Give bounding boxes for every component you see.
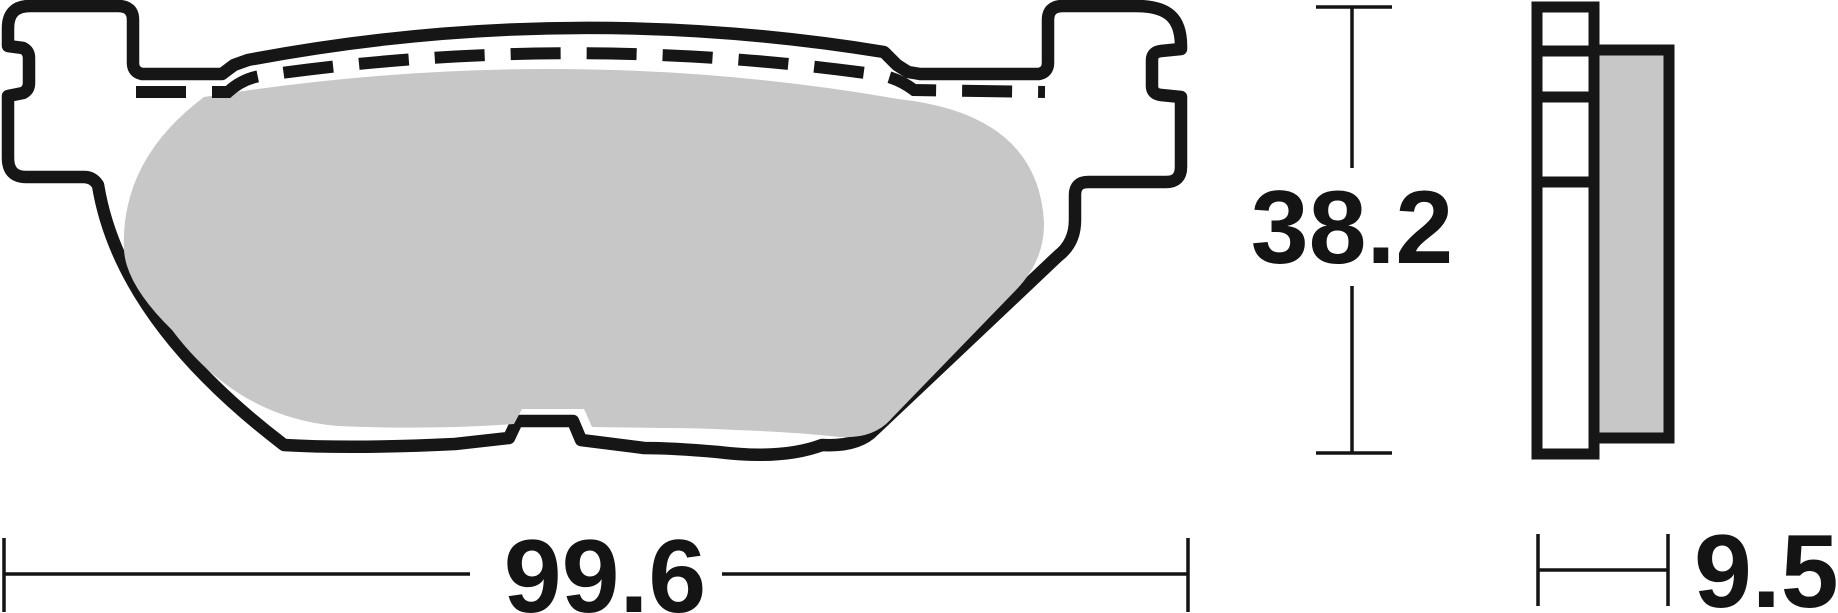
brake-pad-technical-drawing: 99.6 38.2 9.5 bbox=[0, 0, 1838, 613]
height-dimension-label: 38.2 bbox=[1251, 170, 1453, 286]
friction-material-front bbox=[124, 69, 1044, 437]
drawing-canvas: 99.6 38.2 9.5 bbox=[0, 0, 1838, 613]
width-dimension: 99.6 bbox=[4, 519, 1188, 613]
thickness-dimension-label: 9.5 bbox=[1694, 514, 1838, 613]
width-dimension-label: 99.6 bbox=[504, 519, 706, 613]
thickness-dimension: 9.5 bbox=[1538, 514, 1838, 613]
backplate-side-view bbox=[1537, 7, 1594, 454]
friction-material-side-view bbox=[1592, 50, 1669, 438]
height-dimension: 38.2 bbox=[1251, 7, 1453, 453]
